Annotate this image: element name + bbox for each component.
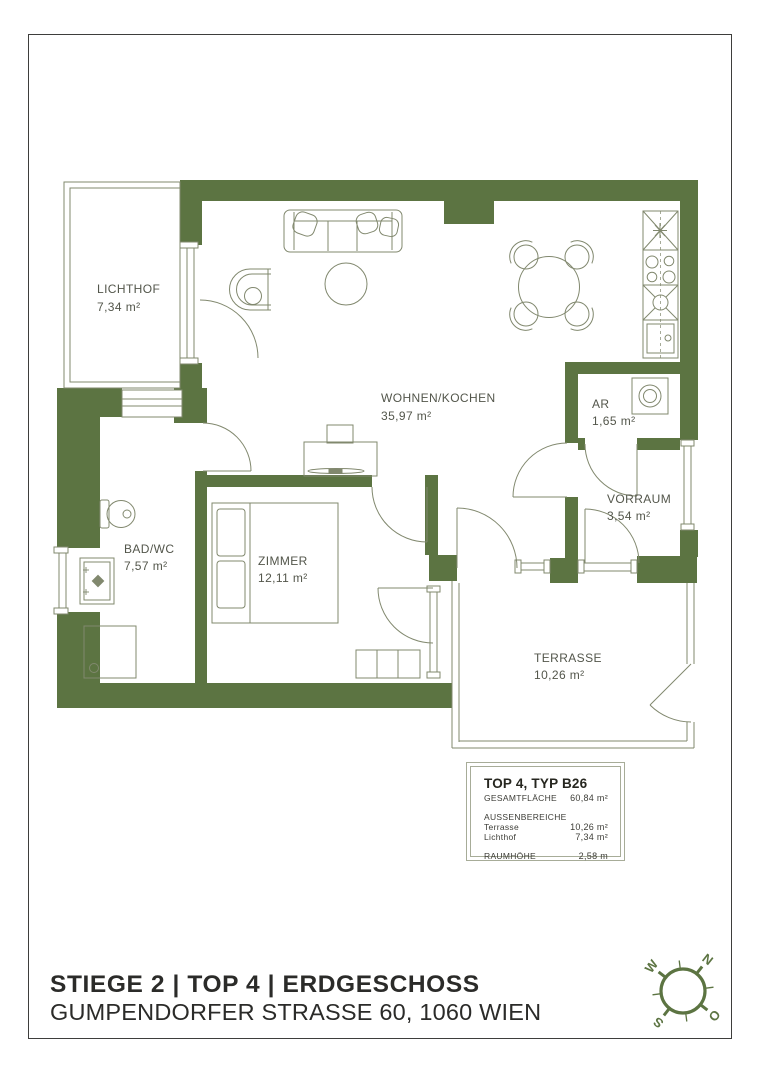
room-label-terrasse: TERRASSE 10,26 m² <box>534 651 602 682</box>
dining-chair <box>558 295 599 336</box>
room-height-value: 2,58 m <box>579 851 608 861</box>
room-label-wohnen-kochen: WOHNEN/KOCHEN 35,97 m² <box>381 391 496 423</box>
dining-table <box>519 257 580 318</box>
total-area-row: GESAMTFLÄCHE 60,84 m² <box>484 793 608 803</box>
entrance-sill <box>578 560 637 573</box>
svg-text:AR: AR <box>592 397 609 411</box>
svg-text:35,97 m²: 35,97 m² <box>381 409 432 423</box>
room-height-row: RAUMHÖHE 2,58 m <box>484 851 608 861</box>
room-label-bad-wc: BAD/WC 7,57 m² <box>124 542 174 573</box>
outdoor-section-label: AUSSENBEREICHE <box>484 812 608 822</box>
outdoor-lichthof-label: Lichthof <box>484 832 516 842</box>
unit-title: TOP 4, TYP B26 <box>484 776 608 791</box>
outdoor-terrasse-label: Terrasse <box>484 822 519 832</box>
unit-info-box-inner: TOP 4, TYP B26 GESAMTFLÄCHE 60,84 m² AUS… <box>470 766 621 857</box>
room-label-vorraum: VORRAUM 3,54 m² <box>607 492 671 523</box>
windows <box>54 242 694 678</box>
compass-o: O <box>706 1007 724 1024</box>
gate-terrasse <box>650 664 691 722</box>
svg-text:10,26 m²: 10,26 m² <box>534 668 585 682</box>
door-wohnen-vorraum <box>513 443 567 497</box>
svg-text:VORRAUM: VORRAUM <box>607 492 671 506</box>
svg-text:7,34 m²: 7,34 m² <box>97 300 140 314</box>
unit-info-box: TOP 4, TYP B26 GESAMTFLÄCHE 60,84 m² AUS… <box>466 762 625 861</box>
window-lichthof <box>180 242 198 364</box>
room-label-lichthof: LICHTHOF 7,34 m² <box>97 282 160 314</box>
compass-s: S <box>650 1014 666 1031</box>
footer-address: GUMPENDORFER STRASSE 60, 1060 WIEN <box>50 999 541 1025</box>
footer: STIEGE 2 | TOP 4 | ERDGESCHOSS GUMPENDOR… <box>50 972 541 1025</box>
window-box-lichthof <box>122 390 182 417</box>
footer-title: STIEGE 2 | TOP 4 | ERDGESCHOSS <box>50 972 541 998</box>
door-zimmer <box>372 487 427 542</box>
room-label-zimmer: ZIMMER 12,11 m² <box>258 554 308 585</box>
room-height-label: RAUMHÖHE <box>484 851 536 861</box>
window-right <box>681 440 694 530</box>
armchair <box>230 269 272 310</box>
outdoor-terrasse-value: 10,26 m² <box>570 822 608 832</box>
svg-text:ZIMMER: ZIMMER <box>258 554 308 568</box>
sink-vanity <box>80 558 114 604</box>
window-south <box>515 560 550 573</box>
svg-text:3,54 m²: 3,54 m² <box>607 509 650 523</box>
window-zimmer-terrasse <box>427 586 440 678</box>
door-lichthof <box>200 300 258 358</box>
svg-text:7,57 m²: 7,57 m² <box>124 559 167 573</box>
outdoor-row-terrasse: Terrasse 10,26 m² <box>484 822 608 832</box>
desk <box>304 425 377 476</box>
door-ar <box>585 444 637 496</box>
stove-star <box>653 223 667 238</box>
compass-icon: N O S W <box>642 951 724 1032</box>
svg-text:TERRASSE: TERRASSE <box>534 651 602 665</box>
floor-plan: LICHTHOF 7,34 m² WOHNEN/KOCHEN 35,97 m² … <box>0 0 763 1080</box>
svg-text:1,65 m²: 1,65 m² <box>592 414 635 428</box>
door-zimmer-terrasse <box>378 588 433 643</box>
svg-text:12,11 m²: 12,11 m² <box>258 571 308 585</box>
total-area-value: 60,84 m² <box>570 793 608 803</box>
furniture <box>80 210 678 678</box>
svg-text:LICHTHOF: LICHTHOF <box>97 282 160 296</box>
sofa <box>284 210 402 252</box>
window-bath <box>54 547 68 614</box>
room-labels: LICHTHOF 7,34 m² WOHNEN/KOCHEN 35,97 m² … <box>97 282 671 682</box>
total-area-label: GESAMTFLÄCHE <box>484 793 557 803</box>
svg-text:WOHNEN/KOCHEN: WOHNEN/KOCHEN <box>381 391 496 405</box>
outdoor-row-lichthof: Lichthof 7,34 m² <box>484 832 608 842</box>
toilet <box>100 500 135 528</box>
kitchen-counter <box>643 211 678 358</box>
room-label-ar: AR 1,65 m² <box>592 397 635 428</box>
outdoor-lichthof-value: 7,34 m² <box>575 832 608 842</box>
compass-n: N <box>699 951 716 969</box>
coffee-table <box>325 263 367 305</box>
door-bath <box>203 423 251 471</box>
door-wohnen-terrasse <box>457 508 517 568</box>
washing-machine <box>632 378 668 414</box>
dining-chair <box>558 235 599 276</box>
dining-chair <box>504 235 545 276</box>
svg-text:BAD/WC: BAD/WC <box>124 542 174 556</box>
dining-set <box>504 235 599 336</box>
sideboard <box>356 650 420 678</box>
